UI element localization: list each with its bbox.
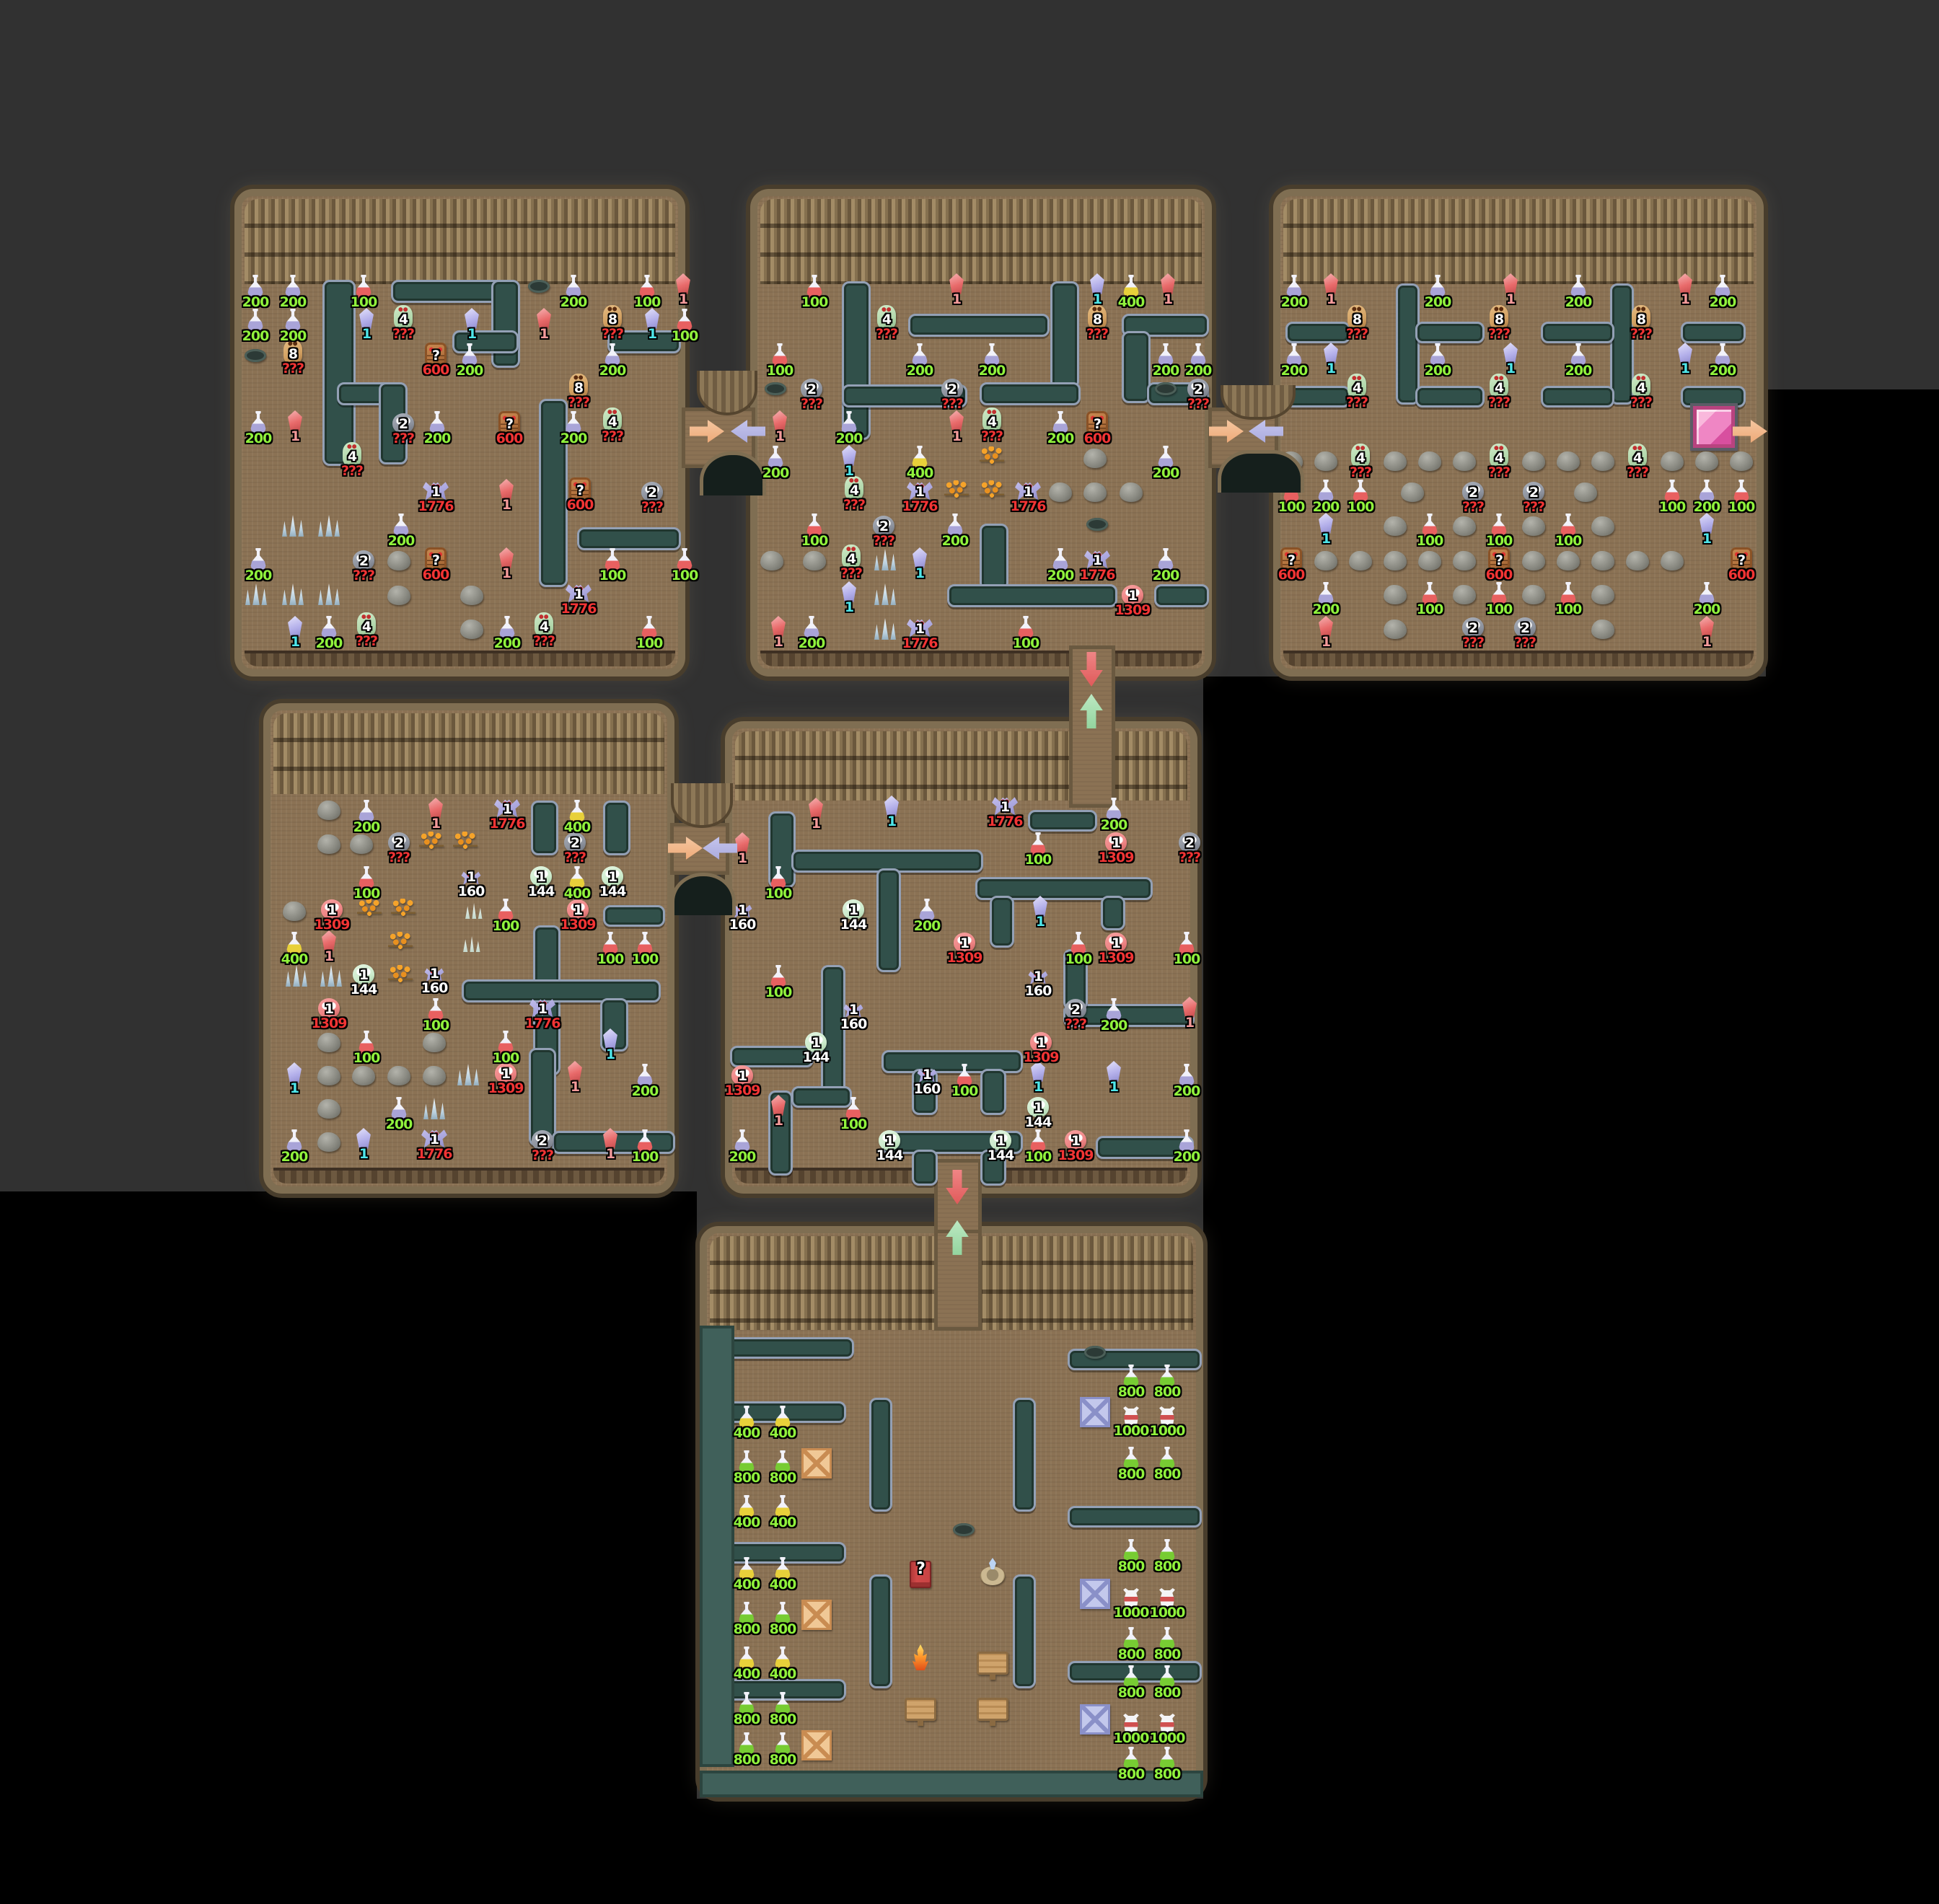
item-label: 144 [988, 1148, 1014, 1163]
inner-wall [947, 584, 1117, 607]
item-label: 1 [915, 485, 924, 499]
item-label: 8 [1353, 312, 1361, 327]
item-label: 800 [1118, 1467, 1145, 1481]
item-label: 1 [952, 429, 961, 444]
item-label: 200 [914, 919, 941, 933]
rock-fringe [245, 651, 675, 666]
item-label: 1 [812, 816, 820, 831]
item-label: 1 [1112, 936, 1120, 951]
item-label: 200 [1153, 466, 1179, 480]
item-label: 200 [1710, 295, 1736, 309]
item-label: 1 [1681, 292, 1689, 307]
inner-wall [791, 1086, 852, 1108]
wooden-wall-top [735, 731, 1187, 801]
item-label: 100 [1486, 534, 1513, 548]
item-label: 1309 [312, 1016, 347, 1031]
item-label: 1 [1702, 635, 1711, 649]
item-label: 1 [915, 622, 924, 636]
item-label: 400 [907, 466, 933, 480]
rubble-hole-icon [245, 349, 266, 362]
item-label: 800 [770, 1622, 796, 1636]
item-label: 4 [1633, 451, 1642, 465]
inner-wall [908, 314, 1050, 337]
item-label: 1 [537, 870, 545, 884]
rock-icon [1522, 516, 1545, 536]
rock-icon [423, 1066, 446, 1085]
item-label: ??? [282, 361, 304, 376]
item-label: 1776 [902, 636, 938, 651]
rubble-hole-icon [528, 280, 550, 293]
inner-wall [1154, 584, 1209, 607]
item-label: 1 [738, 851, 747, 865]
item-label: 400 [734, 1667, 760, 1681]
inner-wall [842, 281, 871, 440]
item-label: 200 [1101, 818, 1127, 832]
item-label: 100 [801, 295, 828, 309]
item-label: 1 [1093, 292, 1102, 307]
item-label: 2 [399, 417, 408, 431]
item-label: ??? [941, 397, 963, 411]
item-label: 800 [770, 1753, 796, 1767]
inner-wall [1068, 1506, 1202, 1528]
item-label: 800 [1118, 1685, 1145, 1700]
item-label: 1309 [1024, 1050, 1059, 1065]
rock-icon [1120, 482, 1143, 502]
item-label: 1309 [1115, 603, 1151, 617]
item-label: 1 [1109, 1080, 1118, 1094]
wood-column-cap [697, 371, 757, 415]
item-label: ??? [392, 431, 414, 446]
inner-wall [1285, 322, 1350, 343]
fountain-icon [980, 1566, 1005, 1585]
item-label: 1 [291, 429, 299, 444]
inner-wall [1681, 322, 1746, 343]
item-label: 1 [467, 327, 476, 341]
rock-icon [1591, 551, 1614, 570]
inner-wall [912, 1150, 938, 1186]
item-label: 100 [1486, 602, 1513, 617]
item-label: 4 [1495, 381, 1503, 395]
item-label: 100 [423, 1018, 449, 1033]
wooden-sign-icon [977, 1652, 1008, 1675]
item-label: 100 [1728, 500, 1755, 514]
item-label: 1 [849, 903, 858, 917]
rock-icon [352, 1066, 375, 1085]
item-label: ??? [1346, 327, 1368, 341]
unexplored-area [0, 1191, 697, 1904]
rock-icon [1453, 585, 1476, 604]
item-label: 1776 [417, 1147, 452, 1161]
item-label: 100 [951, 1084, 978, 1098]
item-label: 1 [1506, 361, 1515, 376]
item-label: 1 [775, 429, 784, 444]
flowers-icon [388, 932, 413, 953]
item-label: 1 [501, 1067, 510, 1081]
item-label: 1 [923, 1067, 931, 1082]
item-label: 800 [734, 1712, 760, 1727]
item-label: 1 [430, 1132, 439, 1147]
rock-fringe [760, 651, 1202, 666]
item-label: ??? [1350, 465, 1371, 480]
rock-icon [387, 586, 410, 605]
item-label: 800 [1154, 1385, 1181, 1399]
rock-icon [387, 551, 410, 570]
item-label: 1 [502, 498, 511, 512]
rock-icon [1083, 449, 1107, 468]
item-label: 800 [770, 1712, 796, 1727]
item-label: 8 [1093, 312, 1102, 327]
rock-icon [1453, 451, 1476, 471]
item-label: 200 [316, 636, 343, 651]
item-label: 800 [734, 1622, 760, 1636]
unexplored-area [1203, 676, 1939, 1904]
item-label: 1 [1093, 553, 1102, 568]
inner-wall [1541, 386, 1614, 407]
item-label: 200 [242, 329, 269, 343]
item-label: 2 [879, 519, 888, 534]
item-label: 100 [801, 534, 828, 548]
inner-wall [491, 280, 520, 368]
item-label: ??? [341, 464, 363, 478]
item-label: 1 [845, 600, 853, 614]
inner-wall [1415, 322, 1485, 343]
item-label: 4 [1353, 381, 1361, 395]
rock-icon [1049, 482, 1072, 502]
item-label: ??? [641, 500, 663, 514]
item-label: 4 [1356, 451, 1365, 465]
item-label: 800 [734, 1753, 760, 1767]
cave-arch [1218, 450, 1304, 493]
item-label: 1 [1702, 532, 1711, 546]
item-label: ??? [564, 850, 586, 865]
flowers-icon [453, 832, 478, 853]
item-label: 200 [942, 534, 969, 548]
item-label: 1 [540, 327, 548, 341]
inner-wall [1028, 810, 1097, 832]
wood-column-cap [671, 783, 733, 828]
rock-icon [1384, 551, 1407, 570]
item-label: ??? [533, 634, 555, 648]
rock-icon [1453, 516, 1476, 536]
item-label: 8 [1637, 312, 1645, 327]
wooden-wall-top [245, 199, 675, 284]
item-label: 1 [887, 814, 896, 829]
item-label: 100 [493, 1051, 519, 1065]
rock-icon [1384, 620, 1407, 639]
inner-wall [980, 382, 1081, 405]
item-label: 1776 [1080, 568, 1115, 582]
item-label: 1000 [1150, 1424, 1185, 1438]
rock-icon [1418, 551, 1441, 570]
item-label: 1 [996, 1134, 1005, 1148]
flowers-icon [357, 899, 382, 920]
item-label: 200 [281, 1150, 308, 1164]
item-label: 200 [280, 295, 307, 309]
item-label: 2 [1521, 621, 1529, 635]
item-label: ? [432, 553, 439, 568]
item-label: 1 [608, 870, 617, 884]
inner-wall [980, 524, 1008, 590]
item-label: ??? [801, 397, 822, 411]
item-label: ??? [1462, 635, 1484, 650]
rock-icon [1695, 451, 1718, 471]
item-label: 2 [538, 1134, 547, 1148]
item-label: 100 [672, 329, 698, 343]
item-label: 200 [1185, 363, 1212, 378]
item-label: 1000 [1114, 1605, 1149, 1620]
rock-icon [1522, 451, 1545, 471]
item-label: 1 [1327, 292, 1335, 307]
item-label: ??? [1065, 1017, 1086, 1031]
item-label: 200 [799, 636, 825, 651]
item-label: 144 [599, 884, 626, 899]
item-label: 1000 [1114, 1731, 1149, 1745]
item-label: ? [1738, 553, 1745, 568]
item-label: 1 [1036, 914, 1045, 929]
item-label: ??? [568, 395, 589, 410]
item-label: ??? [392, 327, 414, 341]
item-label: 144 [351, 982, 377, 997]
inner-wall [980, 1069, 1006, 1115]
item-label: 200 [1565, 363, 1592, 378]
rock-fringe [1283, 651, 1754, 666]
item-label: 1000 [1114, 1424, 1149, 1438]
item-label: ??? [1179, 850, 1200, 865]
item-label: ? [506, 417, 513, 431]
item-label: 200 [457, 363, 483, 378]
item-label: 100 [597, 952, 624, 966]
item-label: 1 [325, 1002, 333, 1016]
item-label: 2 [948, 382, 957, 397]
item-label: 200 [388, 534, 415, 548]
rock-icon [460, 586, 483, 605]
inner-wall [990, 896, 1014, 948]
item-label: 160 [1025, 984, 1052, 998]
item-label: 1309 [1099, 850, 1134, 865]
item-label: 800 [770, 1471, 796, 1485]
item-label: 400 [564, 820, 591, 834]
item-label: 1 [1164, 292, 1172, 307]
rock-icon [1453, 551, 1476, 570]
item-label: 1 [1034, 1101, 1042, 1115]
flowers-icon [388, 965, 413, 987]
rock-icon [1626, 551, 1649, 570]
item-label: ? [1495, 553, 1503, 568]
inner-wall [821, 965, 845, 1099]
rock-icon [1418, 451, 1441, 471]
rock-icon [760, 551, 783, 570]
item-label: 1 [1681, 361, 1689, 376]
item-label: 1000 [1150, 1605, 1185, 1620]
item-label: ??? [1462, 500, 1484, 514]
item-label: ??? [1627, 465, 1648, 480]
item-label: 200 [560, 431, 587, 446]
item-label: 200 [245, 568, 272, 583]
item-label: 200 [729, 1150, 756, 1164]
rock-icon [1349, 551, 1372, 570]
item-label: 800 [1118, 1767, 1145, 1781]
item-label: 1 [738, 903, 747, 917]
rock-icon [1591, 585, 1614, 604]
item-label: 1309 [1058, 1148, 1094, 1163]
item-label: 1 [431, 816, 440, 831]
rock-icon [1522, 551, 1545, 570]
rock-icon [1591, 451, 1614, 471]
item-label: 1 [430, 966, 439, 981]
item-label: 800 [1118, 1559, 1145, 1574]
item-label: 4 [1495, 451, 1503, 465]
inner-wall [1681, 386, 1746, 407]
inner-wall [869, 1398, 892, 1512]
rock-icon [1574, 482, 1597, 502]
item-label: 2 [648, 485, 656, 500]
item-label: 4 [847, 552, 856, 566]
item-label: 200 [424, 431, 451, 446]
item-label: 200 [1694, 500, 1720, 514]
item-label: 2 [807, 382, 816, 397]
item-label: 200 [599, 363, 626, 378]
item-label: 4 [988, 415, 996, 429]
inner-wall [1013, 1574, 1036, 1688]
wooden-wall-top [760, 199, 1202, 284]
item-label: 100 [599, 568, 626, 583]
item-label: 1 [467, 870, 475, 884]
item-label: 1 [960, 936, 969, 951]
item-label: 200 [245, 431, 272, 446]
item-label: 4 [608, 415, 617, 429]
item-label: 1 [574, 587, 583, 601]
item-label: 1 [915, 566, 924, 581]
item-label: 600 [423, 363, 449, 377]
rock-icon [350, 834, 373, 854]
inner-wall [1122, 331, 1151, 403]
rock-icon [317, 1132, 340, 1152]
item-label: 1 [362, 327, 371, 341]
rock-icon [1384, 516, 1407, 536]
item-label: 8 [289, 347, 297, 361]
item-label: 1 [648, 327, 656, 341]
item-label: 200 [1313, 602, 1340, 617]
item-label: 800 [1154, 1685, 1181, 1700]
item-label: ? [1288, 553, 1295, 568]
item-label: 200 [1047, 568, 1074, 583]
dungeon-map: 200200100200100120020014???118???11008??… [0, 0, 1939, 1904]
item-label: 160 [914, 1082, 941, 1096]
rock-icon [1591, 620, 1614, 639]
item-label: 160 [458, 884, 485, 899]
item-label: 4 [540, 620, 548, 634]
item-label: 1776 [490, 816, 525, 831]
item-label: 1 [1001, 800, 1009, 814]
rock-icon [1314, 551, 1337, 570]
item-label: 200 [1425, 295, 1451, 309]
item-label: ??? [1187, 397, 1209, 411]
item-label: 800 [1154, 1767, 1181, 1781]
item-label: 1309 [315, 917, 350, 932]
item-label: 1309 [1099, 951, 1134, 965]
item-label: ??? [1523, 500, 1544, 514]
item-label: 8 [574, 381, 583, 395]
item-label: 1776 [902, 499, 938, 514]
item-label: 800 [1154, 1559, 1181, 1574]
item-label: 1776 [561, 601, 597, 616]
item-label: 100 [351, 295, 377, 309]
item-label: 200 [1174, 1150, 1200, 1164]
item-label: 1 [571, 1080, 579, 1094]
item-label: ??? [876, 327, 897, 341]
item-label: 1776 [418, 499, 454, 514]
wooden-sign-icon [977, 1698, 1008, 1721]
item-label: 200 [494, 636, 521, 651]
rock-icon [1557, 551, 1580, 570]
item-label: 100 [493, 919, 519, 933]
inner-wall [531, 801, 558, 855]
inner-wall [869, 1574, 892, 1688]
item-label: 2 [395, 836, 403, 850]
item-label: 1 [359, 968, 368, 982]
inner-wall [730, 1046, 814, 1067]
item-label: 1 [1506, 292, 1515, 307]
item-label: 2 [359, 554, 368, 568]
item-label: 200 [979, 363, 1006, 378]
item-label: 1 [885, 1134, 894, 1148]
item-label: 1 [1128, 589, 1137, 603]
unexplored-area [0, 1799, 1939, 1904]
item-label: 1 [290, 1081, 299, 1096]
inner-wall [1396, 283, 1420, 405]
item-label: 200 [1281, 363, 1308, 378]
rock-fringe [273, 1168, 664, 1184]
item-label: 1 [774, 635, 783, 649]
item-label: 1 [812, 1036, 820, 1050]
inner-wall [577, 527, 681, 550]
item-label: 200 [1565, 295, 1592, 309]
rock-icon [1661, 451, 1684, 471]
item-label: ??? [1630, 395, 1652, 410]
rock-icon [1522, 585, 1545, 604]
item-label: 200 [836, 431, 863, 446]
item-label: 200 [1174, 1084, 1200, 1098]
item-label: ? [432, 348, 439, 363]
item-label: 1 [1327, 361, 1335, 376]
item-label: 200 [1281, 295, 1308, 309]
item-label: ??? [356, 634, 377, 648]
rubble-hole-icon [1086, 518, 1108, 531]
item-label: 100 [636, 636, 663, 651]
item-label: 600 [1728, 568, 1755, 582]
item-label: 600 [1084, 431, 1111, 446]
item-label: 1 [325, 949, 333, 964]
item-label: 600 [496, 431, 523, 446]
item-label: 100 [672, 568, 698, 583]
item-label: ??? [602, 327, 623, 341]
inner-wall [1541, 322, 1614, 343]
item-label: 2 [1185, 836, 1194, 850]
rock-icon [317, 1066, 340, 1085]
rock-icon [460, 620, 483, 639]
item-label: 400 [1118, 295, 1145, 309]
rock-icon [1314, 451, 1337, 471]
item-label: 200 [1694, 602, 1720, 617]
wooden-sign-icon [905, 1698, 936, 1721]
rubble-hole-icon [765, 382, 786, 395]
item-label: 1 [1071, 1134, 1080, 1148]
item-label: 2 [1469, 621, 1477, 635]
item-label: 1776 [525, 1016, 560, 1031]
item-label: 100 [1013, 636, 1039, 651]
item-label: 600 [423, 568, 449, 582]
item-label: 1 [573, 903, 582, 917]
